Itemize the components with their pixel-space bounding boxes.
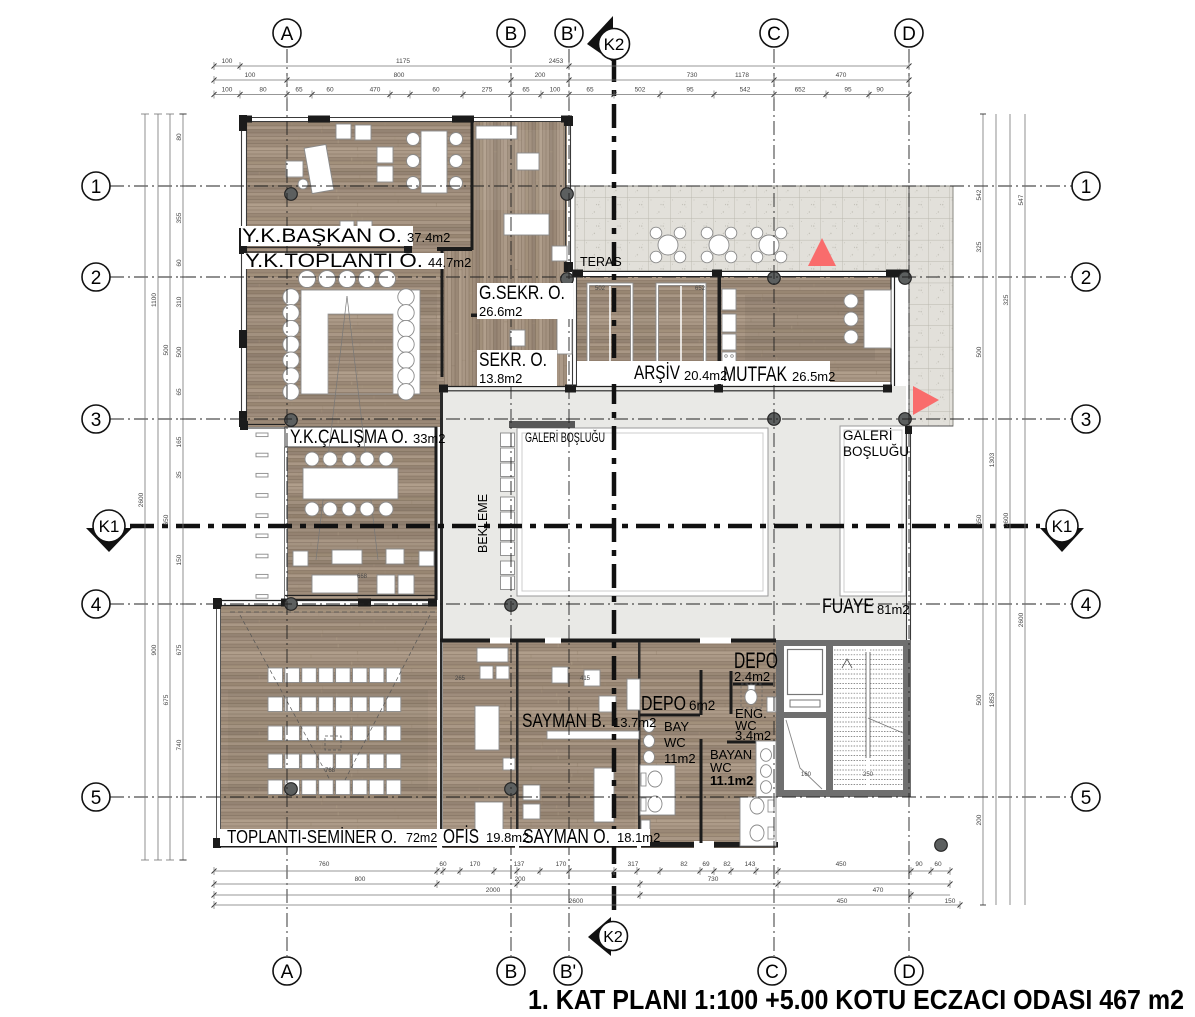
svg-text:BAY: BAY <box>664 719 689 734</box>
svg-text:65: 65 <box>522 87 530 94</box>
svg-text:ARŞİV: ARŞİV <box>634 363 680 384</box>
svg-text:GALERİ BOŞLUĞU: GALERİ BOŞLUĞU <box>525 430 605 445</box>
svg-text:35: 35 <box>176 471 183 479</box>
svg-text:SAYMAN O.: SAYMAN O. <box>523 826 610 848</box>
svg-text:502: 502 <box>595 286 606 292</box>
svg-text:A: A <box>281 962 294 983</box>
svg-text:2453: 2453 <box>549 58 564 65</box>
svg-text:1. KAT PLANI 1:100 +5.00 KOTU: 1. KAT PLANI 1:100 +5.00 KOTU ECZACI ODA… <box>528 984 1184 1015</box>
svg-text:500: 500 <box>976 346 983 357</box>
svg-text:542: 542 <box>740 87 751 94</box>
svg-text:26.6m2: 26.6m2 <box>479 304 522 319</box>
svg-text:500: 500 <box>176 346 183 357</box>
svg-text:170: 170 <box>556 861 567 868</box>
svg-text:470: 470 <box>836 72 847 79</box>
svg-text:800: 800 <box>355 876 366 883</box>
svg-text:900: 900 <box>151 644 158 655</box>
svg-text:13.7m2: 13.7m2 <box>613 715 656 730</box>
svg-text:26.5m2: 26.5m2 <box>792 369 835 384</box>
svg-text:675: 675 <box>163 694 170 705</box>
svg-text:K1: K1 <box>99 517 120 536</box>
svg-text:2000: 2000 <box>486 887 501 894</box>
svg-text:33m2: 33m2 <box>413 431 446 446</box>
svg-text:95: 95 <box>686 87 694 94</box>
svg-text:500: 500 <box>163 344 170 355</box>
svg-text:60: 60 <box>934 861 942 868</box>
svg-text:502: 502 <box>635 87 646 94</box>
svg-text:325: 325 <box>976 241 983 252</box>
svg-text:150: 150 <box>176 554 183 565</box>
svg-text:TOPLANTI-SEMİNER O.: TOPLANTI-SEMİNER O. <box>227 827 397 847</box>
svg-text:1303: 1303 <box>989 452 996 467</box>
svg-text:C: C <box>767 24 781 45</box>
svg-text:730: 730 <box>687 72 698 79</box>
svg-text:Y.K.TOPLANTI O.: Y.K.TOPLANTI O. <box>245 251 423 272</box>
svg-text:3: 3 <box>1081 410 1092 431</box>
svg-text:143: 143 <box>745 861 756 868</box>
svg-text:2: 2 <box>1081 268 1092 289</box>
svg-text:265: 265 <box>455 676 466 682</box>
svg-text:SEKR. O.: SEKR. O. <box>479 350 547 371</box>
svg-text:760: 760 <box>319 861 330 868</box>
svg-text:D: D <box>902 24 916 45</box>
svg-text:82: 82 <box>723 861 731 868</box>
svg-text:SAYMAN B.: SAYMAN B. <box>522 711 606 732</box>
svg-text:450: 450 <box>837 898 848 905</box>
svg-text:547: 547 <box>1018 194 1025 205</box>
svg-text:800: 800 <box>394 72 405 79</box>
svg-text:80: 80 <box>259 87 267 94</box>
svg-text:450: 450 <box>836 861 847 868</box>
svg-text:1: 1 <box>1081 177 1092 198</box>
svg-text:652: 652 <box>695 286 706 292</box>
svg-text:60: 60 <box>439 861 447 868</box>
svg-text:470: 470 <box>370 87 381 94</box>
svg-text:3.4m2: 3.4m2 <box>735 728 771 743</box>
svg-text:60: 60 <box>176 259 183 267</box>
svg-text:65: 65 <box>176 388 183 396</box>
svg-text:2600: 2600 <box>138 492 145 507</box>
svg-text:165: 165 <box>176 436 183 447</box>
svg-text:80: 80 <box>176 133 183 141</box>
svg-text:B': B' <box>560 962 576 983</box>
svg-text:2600: 2600 <box>1003 512 1010 527</box>
svg-text:150: 150 <box>945 898 956 905</box>
svg-text:652: 652 <box>795 87 806 94</box>
svg-text:Y.K.BAŞKAN O.: Y.K.BAŞKAN O. <box>242 226 402 247</box>
svg-text:325: 325 <box>1003 294 1010 305</box>
svg-text:20.4m2: 20.4m2 <box>684 368 727 383</box>
svg-text:4: 4 <box>1081 595 1092 616</box>
svg-text:5: 5 <box>91 788 102 809</box>
svg-text:60: 60 <box>432 87 440 94</box>
svg-text:675: 675 <box>176 644 183 655</box>
svg-text:170: 170 <box>470 861 481 868</box>
svg-text:65: 65 <box>586 87 594 94</box>
svg-text:415: 415 <box>580 676 591 682</box>
svg-text:B: B <box>505 962 518 983</box>
svg-text:317: 317 <box>628 861 639 868</box>
svg-text:200: 200 <box>976 814 983 825</box>
svg-text:137: 137 <box>514 861 525 868</box>
svg-text:OFİS: OFİS <box>443 825 479 848</box>
svg-text:100: 100 <box>222 87 233 94</box>
svg-text:310: 310 <box>176 296 183 307</box>
svg-text:730: 730 <box>708 876 719 883</box>
svg-text:100: 100 <box>222 58 233 65</box>
svg-text:MUTFAK: MUTFAK <box>723 363 787 386</box>
svg-text:K1: K1 <box>1052 517 1073 536</box>
svg-text:GALERİ: GALERİ <box>843 428 893 443</box>
svg-text:37.4m2: 37.4m2 <box>407 230 450 245</box>
svg-text:FUAYE: FUAYE <box>822 595 874 618</box>
svg-text:542: 542 <box>976 189 983 200</box>
svg-text:200: 200 <box>515 876 526 883</box>
svg-text:82: 82 <box>680 861 688 868</box>
svg-text:11.1m2: 11.1m2 <box>710 773 753 788</box>
svg-text:G.SEKR. O.: G.SEKR. O. <box>479 283 565 304</box>
svg-text:2600: 2600 <box>569 898 584 905</box>
svg-text:1178: 1178 <box>735 72 749 79</box>
svg-text:DEPO: DEPO <box>641 693 686 715</box>
svg-text:18.1m2: 18.1m2 <box>617 830 660 845</box>
svg-text:K2: K2 <box>604 35 625 54</box>
svg-text:13.8m2: 13.8m2 <box>479 371 522 386</box>
svg-text:160: 160 <box>801 772 812 778</box>
svg-text:B: B <box>505 24 518 45</box>
svg-text:1175: 1175 <box>396 58 410 65</box>
svg-text:65: 65 <box>295 87 303 94</box>
svg-text:B': B' <box>561 24 577 45</box>
svg-text:WC: WC <box>664 735 686 750</box>
svg-text:C: C <box>765 962 779 983</box>
svg-text:6m2: 6m2 <box>689 698 715 713</box>
svg-text:740: 740 <box>176 739 183 750</box>
svg-text:4: 4 <box>91 595 102 616</box>
svg-text:11m2: 11m2 <box>664 751 696 766</box>
svg-text:90: 90 <box>876 87 884 94</box>
svg-text:650: 650 <box>976 514 983 525</box>
svg-text:650: 650 <box>163 514 170 525</box>
svg-text:Y.K.ÇALIŞMA O.: Y.K.ÇALIŞMA O. <box>290 427 408 448</box>
svg-text:200: 200 <box>535 72 546 79</box>
svg-text:355: 355 <box>176 212 183 223</box>
svg-text:3: 3 <box>91 410 102 431</box>
svg-text:69: 69 <box>702 861 710 868</box>
svg-text:1853: 1853 <box>989 692 996 707</box>
svg-text:90: 90 <box>915 861 923 868</box>
svg-text:668: 668 <box>357 574 368 580</box>
svg-text:5: 5 <box>1081 788 1092 809</box>
svg-text:BOŞLUĞU: BOŞLUĞU <box>843 444 909 459</box>
svg-text:1100: 1100 <box>151 293 158 307</box>
svg-text:250: 250 <box>863 772 874 778</box>
svg-text:2: 2 <box>91 268 102 289</box>
svg-text:1: 1 <box>91 177 102 198</box>
svg-text:100: 100 <box>550 87 561 94</box>
svg-text:500: 500 <box>976 694 983 705</box>
svg-text:A: A <box>281 24 294 45</box>
svg-text:81m2: 81m2 <box>877 602 910 617</box>
svg-text:470: 470 <box>873 887 884 894</box>
svg-text:60: 60 <box>326 87 334 94</box>
svg-text:2600: 2600 <box>1018 612 1025 627</box>
svg-text:K2: K2 <box>603 929 623 946</box>
svg-text:44.7m2: 44.7m2 <box>428 255 471 270</box>
svg-text:95: 95 <box>844 87 852 94</box>
svg-text:72m2: 72m2 <box>406 831 437 845</box>
svg-text:D: D <box>902 962 916 983</box>
svg-text:2.4m2: 2.4m2 <box>734 669 770 684</box>
svg-text:100: 100 <box>245 72 256 79</box>
svg-text:BEKLEME: BEKLEME <box>476 494 490 553</box>
svg-text:275: 275 <box>482 87 493 94</box>
svg-text:TERAS: TERAS <box>580 255 622 269</box>
svg-text:768: 768 <box>325 768 336 774</box>
